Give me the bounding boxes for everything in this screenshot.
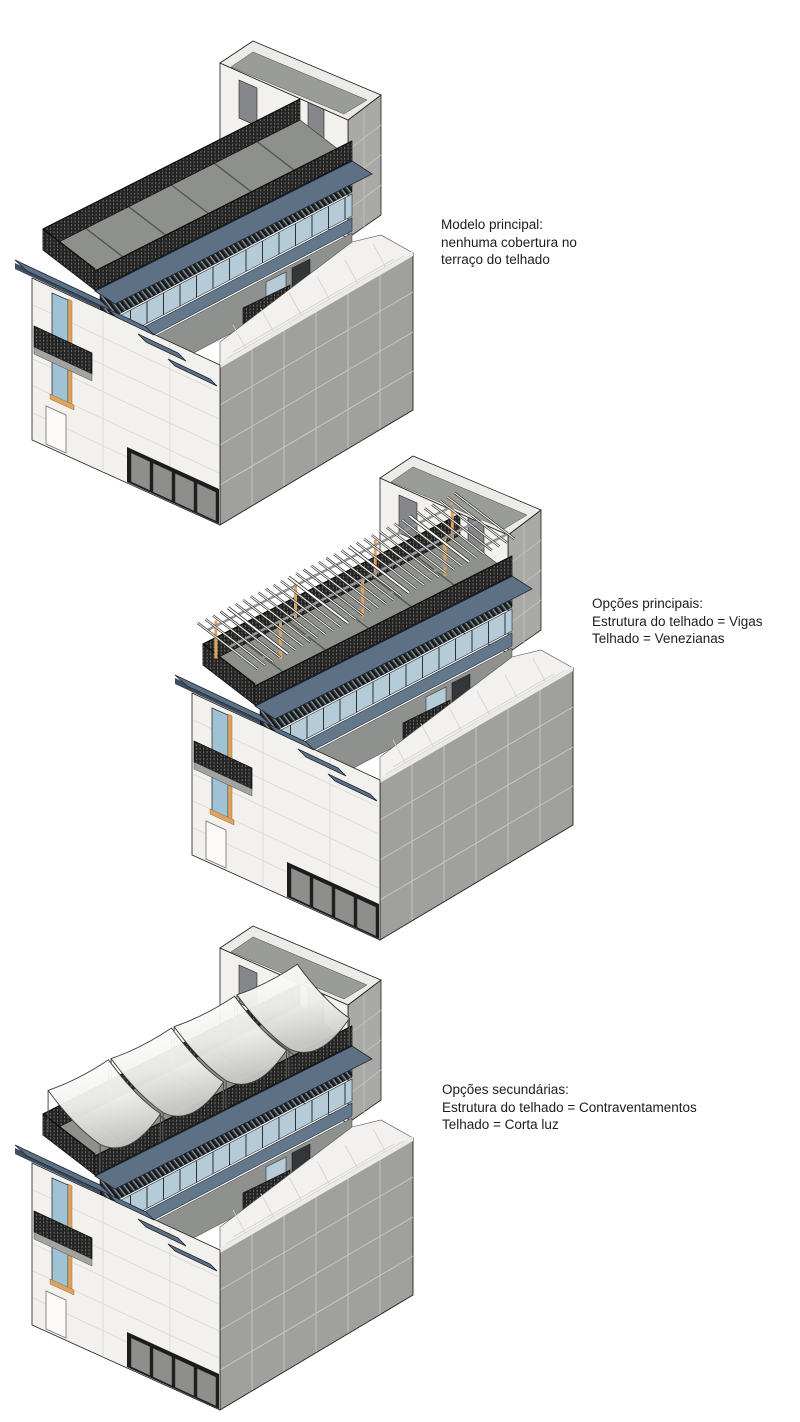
building-model-main [15,41,413,525]
caption-line-3: Telhado = Venezianas [592,630,763,648]
caption-line-3: Telhado = Corta luz [442,1116,697,1134]
caption-line-1: Modelo principal: [441,216,577,234]
design-options-sheet: { "captions": { "modelo_principal": { "l… [0,0,800,1422]
building-model-secondary-options [15,926,413,1410]
caption-line-2: Estrutura do telhado = Contraventamentos [442,1099,697,1117]
caption-line-3: terraço do telhado [441,251,577,269]
caption-line-2: nenhuma cobertura no [441,234,577,252]
building-model-primary-options [175,456,573,940]
caption-line-2: Estrutura do telhado = Vigas [592,613,763,631]
building-no-cover [15,41,413,525]
buildings-illustration [0,0,800,1422]
caption-line-1: Opções secundárias: [442,1081,697,1099]
caption-line-1: Opções principais: [592,595,763,613]
caption-opcoes-principais: Opções principais: Estrutura do telhado … [592,595,763,648]
building-structure-3 [15,926,413,1410]
caption-opcoes-secundarias: Opções secundárias: Estrutura do telhado… [442,1081,697,1134]
caption-modelo-principal: Modelo principal: nenhuma cobertura no t… [441,216,577,269]
building-structure-2 [175,456,573,940]
